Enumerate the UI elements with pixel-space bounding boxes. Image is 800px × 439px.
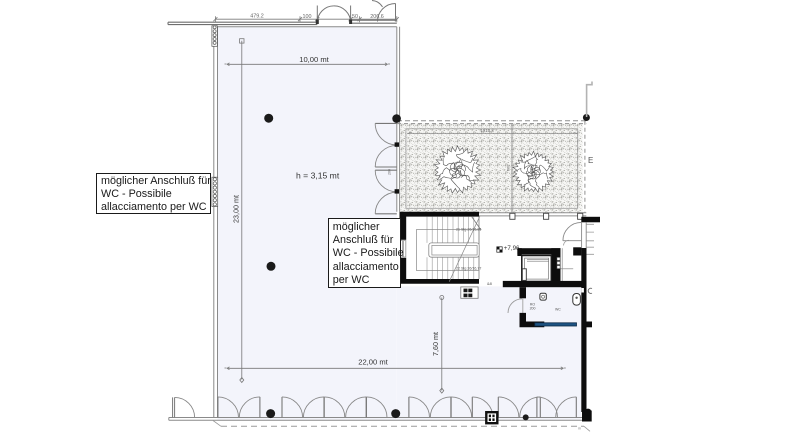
svg-text:23,00 mt: 23,00 mt xyxy=(232,195,241,223)
svg-text:&8: &8 xyxy=(487,281,493,286)
svg-text:7,60 mt: 7,60 mt xyxy=(431,332,440,356)
svg-text:22 Stg 26/16,77: 22 Stg 26/16,77 xyxy=(456,267,481,271)
svg-text:WC: WC xyxy=(555,308,561,312)
svg-text:21 Stg 26/16,86: 21 Stg 26/16,86 xyxy=(456,228,481,232)
svg-text:200: 200 xyxy=(530,307,536,311)
svg-text:22,00 mt: 22,00 mt xyxy=(358,358,388,367)
svg-text:h = 3,15 mt: h = 3,15 mt xyxy=(296,171,340,181)
svg-text:10,00 mt: 10,00 mt xyxy=(299,55,329,64)
